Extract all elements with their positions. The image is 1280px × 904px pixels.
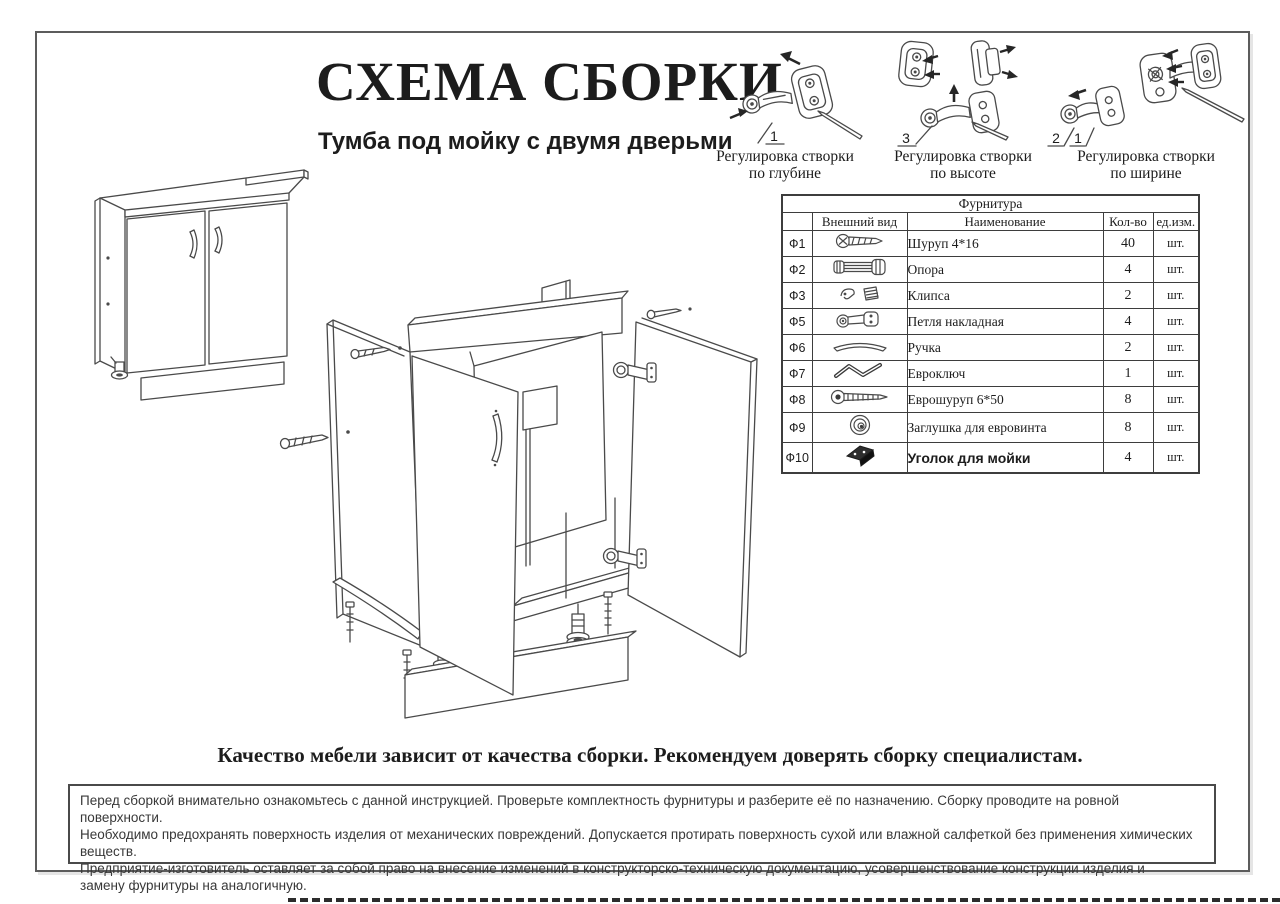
hardware-name: Евроключ <box>907 361 1103 387</box>
hardware-id: Ф2 <box>782 257 812 283</box>
hardware-unit: шт. <box>1153 335 1199 361</box>
hardware-name: Шуруп 4*16 <box>907 231 1103 257</box>
hardware-id: Ф3 <box>782 283 812 309</box>
hardware-row: Ф1Шуруп 4*1640шт. <box>782 231 1199 257</box>
col-header-appearance: Внешний вид <box>812 213 907 231</box>
door-hinge-icon <box>604 549 647 569</box>
quality-slogan: Качество мебели зависит от качества сбор… <box>40 743 1260 768</box>
notice-line: Перед сборкой внимательно ознакомьтесь с… <box>80 792 1204 826</box>
hardware-row: Ф2Опора4шт. <box>782 257 1199 283</box>
handle-icon <box>830 337 890 353</box>
callout-1: 1 <box>770 128 778 144</box>
hardware-id: Ф1 <box>782 231 812 257</box>
hardware-unit: шт. <box>1153 413 1199 443</box>
hardware-id: Ф7 <box>782 361 812 387</box>
hardware-row: Ф10Уголок для мойки4шт. <box>782 443 1199 474</box>
hardware-qty: 40 <box>1103 231 1153 257</box>
hardware-id: Ф6 <box>782 335 812 361</box>
col-header-name: Наименование <box>907 213 1103 231</box>
notice-line: замену фурнитуры на аналогичную. <box>80 877 1204 894</box>
notice-line: Предприятие-изготовитель оставляет за со… <box>80 860 1204 877</box>
hardware-qty: 4 <box>1103 443 1153 474</box>
hinge-height-caption: Регулировка створки по высоте <box>878 148 1048 182</box>
hardware-name: Заглушка для евровинта <box>907 413 1103 443</box>
hardware-id: Ф8 <box>782 387 812 413</box>
col-header-id <box>782 213 812 231</box>
overlay-hinge-icon <box>834 309 886 329</box>
hardware-qty: 4 <box>1103 257 1153 283</box>
hardware-appearance-cell <box>812 443 907 474</box>
callout-2: 2 <box>1052 130 1060 146</box>
hardware-table: Фурнитура Внешний вид Наименование Кол-в… <box>781 194 1200 474</box>
euro-screw-icon <box>830 388 890 406</box>
hinge-depth-illustration-icon: 1 <box>700 36 870 148</box>
assembly-instruction-sheet: СХЕМА СБОРКИ Тумба под мойку с двумя две… <box>0 0 1280 904</box>
hardware-name: Петля накладная <box>907 309 1103 335</box>
hardware-appearance-cell <box>812 335 907 361</box>
hardware-unit: шт. <box>1153 309 1199 335</box>
hardware-unit: шт. <box>1153 231 1199 257</box>
hardware-name: Клипса <box>907 283 1103 309</box>
hinge-width-illustration-icon: 2 1 <box>1046 36 1246 148</box>
callout-1b: 1 <box>1074 130 1082 146</box>
hardware-qty: 2 <box>1103 335 1153 361</box>
hinge-height-illustration-icon: 3 <box>878 36 1048 148</box>
hardware-row: Ф9Заглушка для евровинта8шт. <box>782 413 1199 443</box>
hardware-name: Уголок для мойки <box>907 443 1103 474</box>
hardware-row: Ф8Еврошуруп 6*508шт. <box>782 387 1199 413</box>
hardware-name: Опора <box>907 257 1103 283</box>
hardware-rows: Ф1Шуруп 4*1640шт.Ф2Опора4шт.Ф3Клипса2шт.… <box>782 231 1199 474</box>
screw-icon <box>835 232 885 250</box>
screw-cap-icon <box>847 413 873 437</box>
hardware-unit: шт. <box>1153 361 1199 387</box>
hardware-qty: 4 <box>1103 309 1153 335</box>
hardware-row: Ф3Клипса2шт. <box>782 283 1199 309</box>
hardware-appearance-cell <box>812 257 907 283</box>
hardware-id: Ф5 <box>782 309 812 335</box>
callout-3: 3 <box>902 130 910 146</box>
hardware-row: Ф5Петля накладная4шт. <box>782 309 1199 335</box>
hinge-adjust-height-block: 3 Регулировка створки по высоте <box>878 36 1048 188</box>
col-header-qty: Кол-во <box>1103 213 1153 231</box>
hardware-row: Ф6Ручка2шт. <box>782 335 1199 361</box>
hardware-unit: шт. <box>1153 283 1199 309</box>
hardware-qty: 8 <box>1103 387 1153 413</box>
flying-screw-icon <box>647 307 691 318</box>
hardware-name: Еврошуруп 6*50 <box>907 387 1103 413</box>
hardware-unit: шт. <box>1153 443 1199 474</box>
support-leg-icon <box>832 257 888 277</box>
clip-icon <box>836 284 884 302</box>
hardware-appearance-cell <box>812 387 907 413</box>
leg-bolt-icon <box>604 592 612 634</box>
hinge-depth-caption: Регулировка створки по глубине <box>700 148 870 182</box>
hinge-adjust-width-block: 2 1 Регулировка створки по ширине <box>1046 36 1246 188</box>
hardware-appearance-cell <box>812 283 907 309</box>
hardware-qty: 8 <box>1103 413 1153 443</box>
hardware-appearance-cell <box>812 413 907 443</box>
page-subtitle: Тумба под мойку с двумя дверьми <box>318 128 732 156</box>
hardware-appearance-cell <box>812 309 907 335</box>
sink-bracket-icon <box>843 443 877 467</box>
hardware-name: Ручка <box>907 335 1103 361</box>
notice-box: Перед сборкой внимательно ознакомьтесь с… <box>68 784 1216 864</box>
hardware-id: Ф10 <box>782 443 812 474</box>
col-header-unit: ед.изм. <box>1153 213 1199 231</box>
hinge-width-caption: Регулировка створки по ширине <box>1046 148 1246 182</box>
hardware-id: Ф9 <box>782 413 812 443</box>
hardware-appearance-cell <box>812 361 907 387</box>
hardware-qty: 1 <box>1103 361 1153 387</box>
hardware-qty: 2 <box>1103 283 1153 309</box>
exploded-assembly-drawing <box>270 268 770 728</box>
hardware-row: Ф7Евроключ1шт. <box>782 361 1199 387</box>
hardware-table-title: Фурнитура <box>782 195 1199 213</box>
bottom-cut-line <box>288 898 1280 902</box>
notice-line: Необходимо предохранять поверхность изде… <box>80 826 1204 860</box>
hardware-appearance-cell <box>812 231 907 257</box>
hardware-unit: шт. <box>1153 387 1199 413</box>
hinge-adjust-depth-block: 1 Регулировка створки по глубине <box>700 36 870 188</box>
hardware-unit: шт. <box>1153 257 1199 283</box>
euro-key-icon <box>832 361 888 381</box>
